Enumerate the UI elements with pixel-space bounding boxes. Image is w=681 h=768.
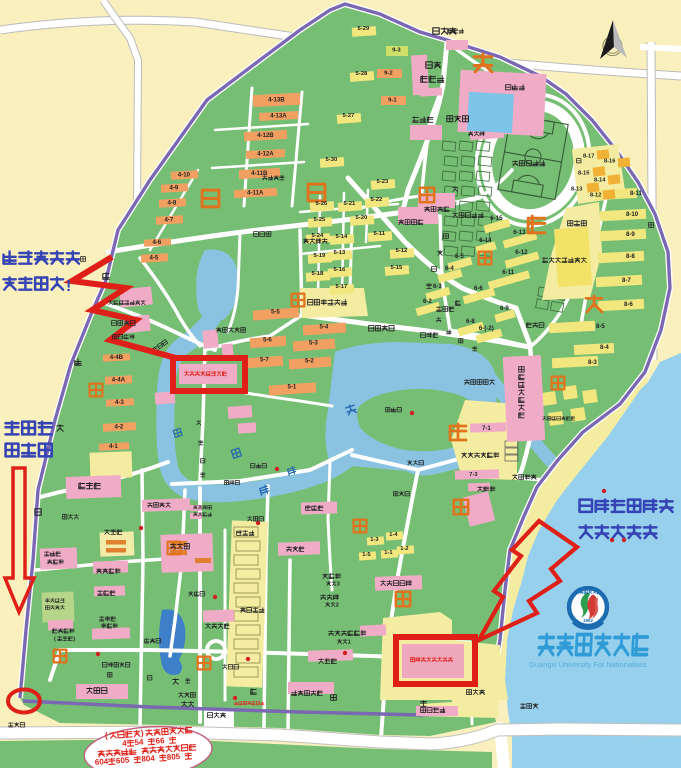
svg-text:6-4: 6-4 — [445, 265, 454, 272]
svg-text:5-19: 5-19 — [314, 253, 327, 259]
svg-text:9-3: 9-3 — [392, 48, 401, 54]
svg-text:5-21: 5-21 — [344, 201, 357, 207]
svg-text:1-2: 1-2 — [400, 546, 408, 552]
svg-text:66: 66 — [155, 736, 165, 746]
svg-text:8-8: 8-8 — [626, 253, 635, 260]
svg-text:4-9: 4-9 — [170, 184, 179, 191]
svg-text:6-12: 6-12 — [515, 249, 528, 256]
svg-text:2: 2 — [336, 602, 339, 608]
svg-text:6-5: 6-5 — [455, 253, 464, 260]
svg-text:5-29: 5-29 — [358, 26, 371, 32]
svg-text:8-12: 8-12 — [590, 192, 601, 198]
svg-text:5-20: 5-20 — [356, 215, 369, 221]
svg-text:5-3: 5-3 — [309, 339, 318, 346]
svg-text:1952: 1952 — [583, 618, 594, 623]
svg-text:8-5: 8-5 — [596, 323, 605, 330]
svg-text:8-13: 8-13 — [571, 186, 582, 192]
svg-text:604: 604 — [95, 757, 109, 767]
svg-text:8-10: 8-10 — [626, 211, 639, 218]
svg-text:9-1: 9-1 — [388, 98, 397, 104]
svg-text:5-12: 5-12 — [396, 248, 409, 254]
svg-text:5-27: 5-27 — [343, 113, 356, 119]
svg-text:5-5: 5-5 — [271, 308, 280, 315]
svg-text:4-12B: 4-12B — [257, 132, 274, 139]
svg-text:4-4B: 4-4B — [110, 354, 124, 361]
svg-text:8-11: 8-11 — [630, 190, 642, 197]
svg-text:4-11A: 4-11A — [247, 189, 264, 196]
svg-text:5-6: 5-6 — [263, 336, 272, 343]
svg-text:3: 3 — [337, 581, 340, 587]
svg-text:5-17: 5-17 — [336, 284, 349, 290]
svg-text:(: ( — [54, 636, 56, 642]
svg-text:6-15: 6-15 — [490, 215, 503, 222]
svg-text:7-3: 7-3 — [469, 472, 477, 478]
svg-text:!: ! — [66, 278, 71, 295]
svg-text:5-23: 5-23 — [377, 179, 390, 185]
svg-text:7-1: 7-1 — [482, 425, 491, 432]
svg-text:6-9: 6-9 — [500, 305, 509, 312]
svg-text:605: 605 — [116, 756, 130, 766]
svg-text:4-6: 4-6 — [153, 239, 162, 246]
svg-text:5-25: 5-25 — [314, 217, 327, 223]
svg-text:5-15: 5-15 — [391, 265, 404, 271]
svg-text:4-13A: 4-13A — [270, 112, 287, 119]
svg-text:5-26: 5-26 — [316, 201, 329, 207]
svg-text:6-14: 6-14 — [479, 237, 492, 244]
svg-text:5-18: 5-18 — [312, 271, 325, 277]
svg-text:1: 1 — [348, 639, 351, 645]
svg-text:4-4A: 4-4A — [112, 376, 126, 383]
svg-text:1-3: 1-3 — [370, 537, 378, 543]
svg-text:5-13: 5-13 — [334, 250, 347, 256]
svg-text:8-14: 8-14 — [594, 177, 606, 183]
svg-text:): ) — [73, 636, 75, 642]
svg-text:8-6: 8-6 — [624, 301, 633, 308]
svg-text:4-12A: 4-12A — [257, 150, 274, 157]
svg-text:4-13B: 4-13B — [268, 96, 285, 103]
svg-text:8-16: 8-16 — [604, 158, 615, 164]
svg-text:6-2: 6-2 — [423, 298, 432, 305]
svg-text:6-11: 6-11 — [502, 269, 514, 276]
svg-text:4-8: 4-8 — [168, 199, 177, 206]
svg-text:6-3: 6-3 — [433, 283, 442, 290]
svg-text:4-7: 4-7 — [165, 216, 174, 223]
svg-text:4-1: 4-1 — [109, 443, 118, 450]
svg-text:5-30: 5-30 — [326, 157, 339, 163]
svg-text:Guangxi University For Nationa: Guangxi University For Nationalities — [529, 660, 647, 669]
svg-text:1-5: 1-5 — [362, 552, 370, 558]
svg-text:5-11: 5-11 — [374, 231, 386, 237]
svg-text:805: 805 — [167, 752, 181, 762]
svg-text:5-7: 5-7 — [260, 356, 269, 363]
svg-text:6-6: 6-6 — [474, 285, 483, 292]
svg-text:5-4: 5-4 — [320, 323, 329, 330]
svg-text:4-3: 4-3 — [115, 399, 124, 406]
svg-text:8-3: 8-3 — [588, 359, 597, 366]
svg-text:8-4: 8-4 — [600, 344, 609, 351]
svg-text:6-8: 6-8 — [466, 318, 475, 325]
svg-text:8-17: 8-17 — [583, 153, 594, 159]
svg-text:8-9: 8-9 — [626, 231, 635, 238]
svg-text:804: 804 — [141, 754, 155, 764]
svg-text:4-5: 4-5 — [150, 254, 159, 261]
svg-text:5-24: 5-24 — [312, 233, 325, 239]
svg-text:1-1: 1-1 — [384, 550, 392, 556]
svg-text:9-2: 9-2 — [384, 71, 393, 77]
svg-text:5-28: 5-28 — [356, 71, 369, 77]
svg-text:5-14: 5-14 — [336, 234, 349, 240]
svg-text:5-16: 5-16 — [334, 267, 347, 273]
svg-text:5-22: 5-22 — [371, 197, 384, 203]
svg-text:1-4: 1-4 — [389, 532, 398, 538]
svg-text:5-2: 5-2 — [305, 357, 314, 364]
svg-text:6-(-2): 6-(-2) — [479, 325, 494, 332]
svg-text:54: 54 — [134, 737, 144, 747]
svg-text:8-7: 8-7 — [622, 277, 631, 284]
svg-text:5-1: 5-1 — [288, 383, 297, 390]
svg-text:6-13: 6-13 — [513, 229, 526, 236]
svg-text:4-2: 4-2 — [115, 423, 124, 430]
svg-text:4-10: 4-10 — [178, 171, 191, 178]
svg-text:8-15: 8-15 — [578, 170, 589, 176]
